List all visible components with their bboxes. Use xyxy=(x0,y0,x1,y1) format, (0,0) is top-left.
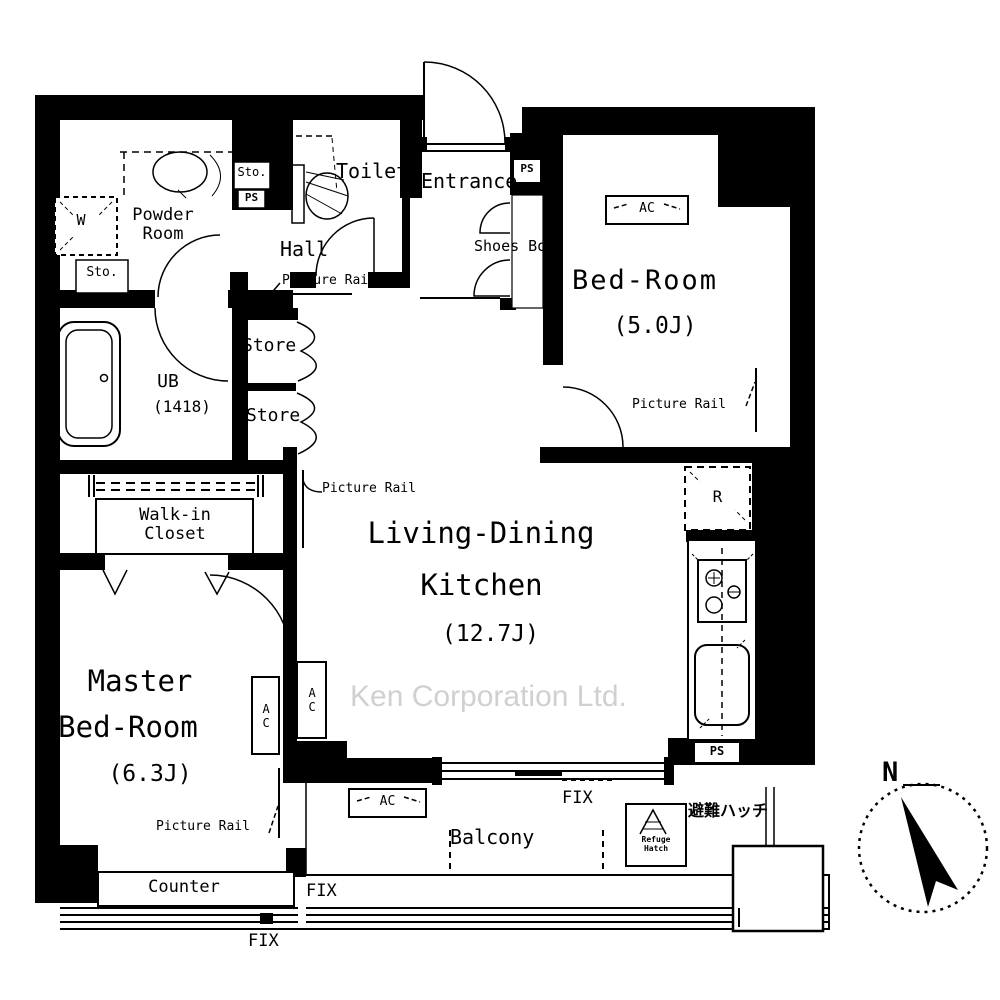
evacuation-hatch-jp-label: 避難ハッチ xyxy=(688,802,768,820)
picture-rail-label-ldk: Picture Rail xyxy=(322,482,416,496)
powder-line2: Room xyxy=(143,224,184,244)
room-label-hall: Hall xyxy=(280,238,328,260)
ps-label-top: PS xyxy=(238,192,265,204)
wic-line1: Walk-in xyxy=(139,505,211,525)
wic-line2: Closet xyxy=(144,524,205,544)
picture-rail-label-hall: Picture Rail xyxy=(282,274,376,288)
room-label-entrance: Entrance xyxy=(421,170,517,192)
ac-label-balcony: AC xyxy=(349,795,426,809)
washer-label: W xyxy=(55,212,107,229)
ps-label-entrance: PS xyxy=(514,163,540,175)
room-label-master-line1: Master xyxy=(78,666,202,698)
room-label-walk-in-closet: Walk-in Closet xyxy=(100,506,250,543)
refuge-line1: Refuge xyxy=(642,835,671,844)
room-size-master: (6.3J) xyxy=(98,762,202,787)
picture-rail-label-bedroom: Picture Rail xyxy=(632,398,726,412)
store-folding-door-1 xyxy=(297,322,316,381)
room-size-ldk: (12.7J) xyxy=(433,622,548,647)
shoes-box-door-1 xyxy=(480,203,510,233)
bathtub-icon xyxy=(58,322,120,446)
compass-needle xyxy=(901,797,958,907)
room-label-bedroom: Bed-Room xyxy=(565,266,725,296)
room-label-balcony: Balcony xyxy=(450,826,534,848)
room-size-bedroom: (5.0J) xyxy=(600,314,710,339)
room-label-ldk-line2: Kitchen xyxy=(409,570,554,602)
room-label-ub: UB xyxy=(146,372,190,392)
fridge-label: R xyxy=(685,488,750,506)
picture-rail-label-master: Picture Rail xyxy=(156,820,250,834)
powder-line1: Powder xyxy=(132,205,193,225)
powder-door-arc xyxy=(158,235,220,297)
fix-label-ldk-window: FIX xyxy=(562,789,593,808)
fix-label-counter-top: FIX xyxy=(306,882,337,901)
room-label-master-line2: Bed-Room xyxy=(46,712,210,744)
entrance-door-arc xyxy=(424,62,505,143)
fix-label-counter-bottom: FIX xyxy=(248,932,279,951)
compass-north-label: N xyxy=(882,758,898,788)
floorplan-drawing xyxy=(0,0,1000,1000)
room-label-powder: Powder Room xyxy=(115,206,211,243)
watermark: Ken Corporation Ltd. xyxy=(350,680,627,714)
room-size-ub: (1418) xyxy=(142,398,222,416)
shoes-box-door-2 xyxy=(474,260,510,296)
floor-plan: Powder Room Sto. PS W Sto. Toilet Entran… xyxy=(0,0,1000,1000)
balcony-structure xyxy=(733,846,823,931)
ac-label-master-1: AC xyxy=(252,677,279,754)
refuge-line2: Hatch xyxy=(644,844,668,853)
room-label-store-2: Store xyxy=(246,406,300,426)
ac-label-bedroom: AC xyxy=(606,202,688,216)
door-stop-mark-1 xyxy=(103,570,127,594)
refuge-hatch-label: Refuge Hatch xyxy=(628,836,684,854)
sto-label-top: Sto. xyxy=(234,166,270,179)
ps-label-kitchen: PS xyxy=(695,745,739,758)
room-label-toilet: Toilet xyxy=(336,160,408,182)
master-door-arc xyxy=(210,575,290,655)
room-label-store-1: Store xyxy=(242,336,296,356)
room-label-ldk-line1: Living-Dining xyxy=(356,518,606,550)
bedroom-door-arc xyxy=(563,387,623,447)
counter-label: Counter xyxy=(134,878,234,897)
room-label-shoes-box: Shoes Box xyxy=(474,238,555,255)
ac-label-master-2: AC xyxy=(297,662,326,738)
washbasin-icon xyxy=(120,152,233,200)
compass-icon xyxy=(859,784,987,912)
sto-label-left: Sto. xyxy=(76,266,128,280)
hanger-rail xyxy=(89,475,263,497)
